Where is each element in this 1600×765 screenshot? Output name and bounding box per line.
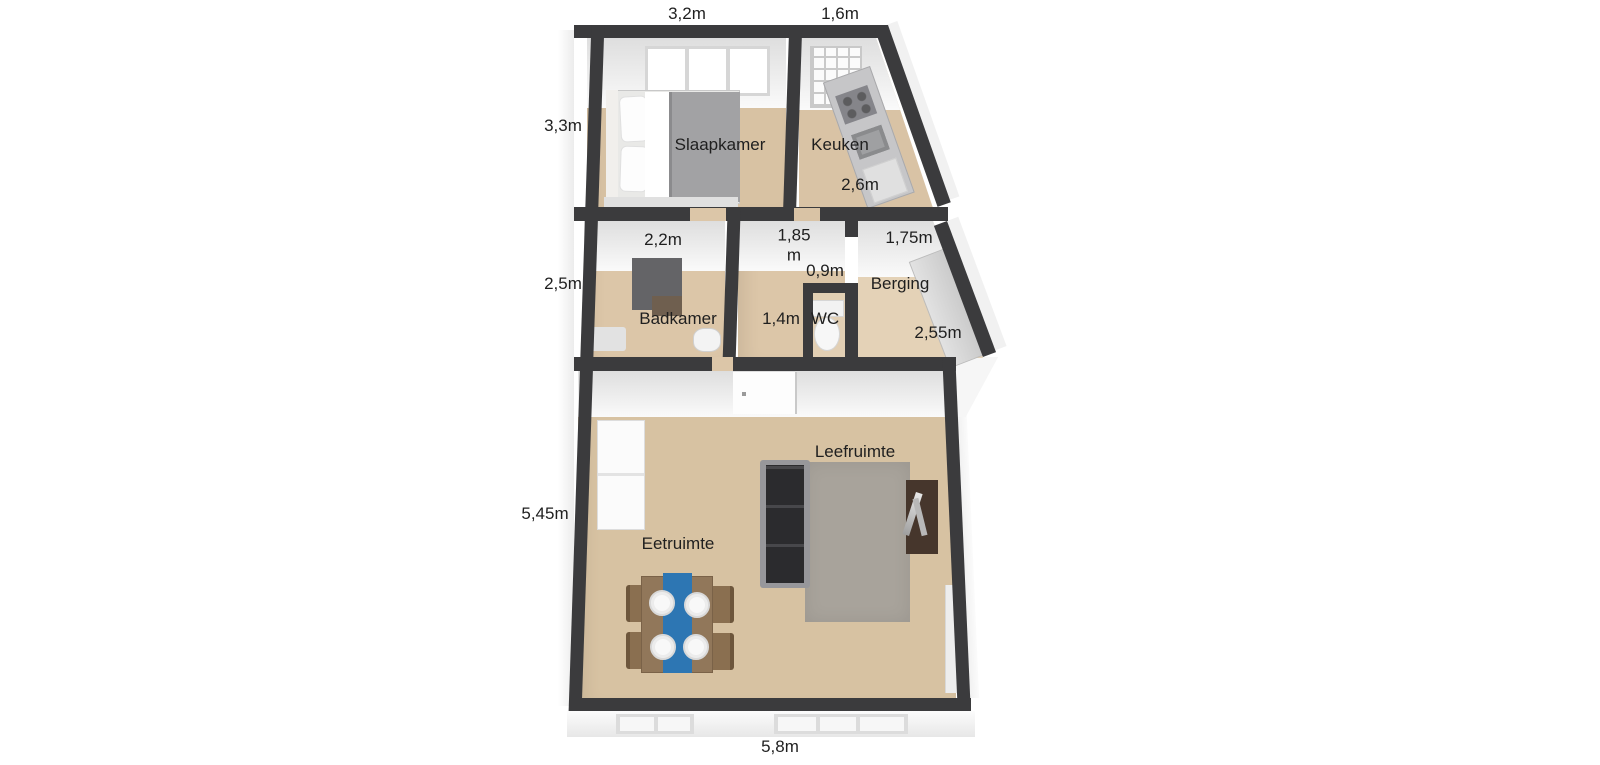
room-label-berging: Berging (871, 274, 930, 294)
rug (805, 462, 910, 622)
stove (835, 85, 877, 125)
dim-berging-width: 1,75m (885, 228, 932, 248)
dim-hal-niche: 0,9m (806, 261, 844, 281)
plate (684, 592, 710, 618)
plate (683, 634, 709, 660)
bed-headboard (606, 90, 618, 202)
bedroom-window (686, 46, 729, 96)
plate (650, 634, 676, 660)
dim-slaapkamer-width: 3,2m (668, 4, 706, 24)
plate (649, 590, 675, 616)
facade-window-pane (860, 717, 904, 731)
facade-window-pane (820, 717, 856, 731)
sideboard-divider (598, 473, 644, 476)
dim-badkamer-width: 2,2m (644, 230, 682, 250)
sofa-cushions (766, 465, 804, 583)
room-label-leefruimte: Leefruimte (815, 442, 895, 462)
bedroom-window (727, 46, 770, 96)
bathroom-sink (693, 328, 721, 352)
exterior-face-berging (950, 357, 1006, 417)
dim-leefruimte-width: 5,8m (761, 737, 799, 757)
bed-sheet (645, 92, 671, 200)
door-opening-hal-leefruimte (712, 357, 733, 371)
wall-middle-lower (574, 357, 956, 371)
room-label-badkamer: Badkamer (639, 309, 716, 329)
facade-window-pane (778, 717, 816, 731)
facade-window-pane (658, 717, 690, 731)
wall-bottom (574, 698, 971, 711)
wall-top (574, 25, 888, 38)
wall-middle-upper (574, 207, 948, 221)
dim-hal-depth: 1,4m (762, 309, 800, 329)
wall-hal-berging-stub (845, 207, 858, 237)
dim-berging-depth: 2,55m (914, 323, 961, 343)
sideboard (597, 420, 645, 530)
dim-badkamer-depth: 2,5m (544, 274, 582, 294)
room-label-wc: WC (811, 309, 839, 329)
bedroom-window (645, 46, 688, 96)
dim-hal-width: 1,85 m (777, 225, 810, 264)
dim-slaapkamer-depth: 3,3m (544, 116, 582, 136)
facade-window-pane (620, 717, 654, 731)
door-handle (742, 392, 746, 396)
door-opening-hal-keuken (794, 208, 820, 221)
room-label-slaapkamer: Slaapkamer (675, 135, 766, 155)
dim-keuken-width: 1,6m (821, 4, 859, 24)
room-label-eetruimte: Eetruimte (642, 534, 715, 554)
door-opening-hal-slaapkamer (690, 208, 726, 221)
dim-leefruimte-depth: 5,45m (521, 504, 568, 524)
room-label-keuken: Keuken (811, 135, 869, 155)
dim-keuken-depth: 2,6m (841, 175, 879, 195)
floor-plan: 3,2m 1,6m 3,3m 2,5m 5,45m 2,6m 2,2m 1,85… (0, 0, 1600, 765)
bed-footboard (604, 197, 738, 207)
